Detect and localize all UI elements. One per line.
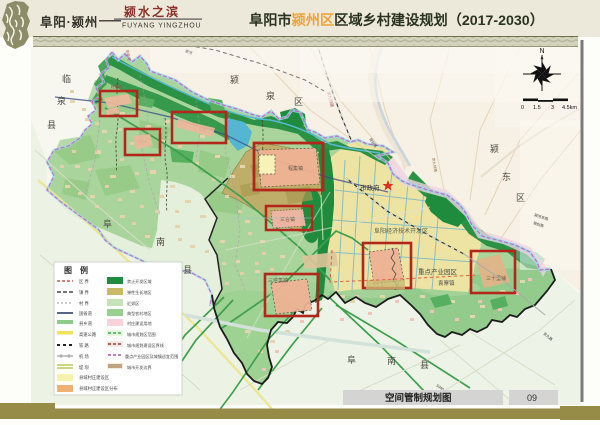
svg-text:颍水之滨: 颍水之滨 <box>124 4 180 19</box>
svg-text:重点产业园区: 重点产业园区 <box>418 267 458 276</box>
svg-text:0: 0 <box>521 105 524 111</box>
svg-text:三塔集镇: 三塔集镇 <box>268 277 288 284</box>
svg-text:城市开发边界: 城市开发边界 <box>127 364 152 370</box>
svg-text:3: 3 <box>551 105 554 111</box>
svg-text:N: N <box>540 48 545 55</box>
svg-text:城市规划建设区界线: 城市规划建设区界线 <box>127 342 164 348</box>
svg-text:1.5: 1.5 <box>533 105 541 111</box>
svg-text:颍: 颍 <box>230 74 239 85</box>
svg-text:4.5km: 4.5km <box>562 105 577 111</box>
svg-text:临: 临 <box>62 73 71 84</box>
svg-text:重点产业园区及城镇适宜范围: 重点产业园区及城镇适宜范围 <box>125 353 178 359</box>
svg-text:县域村庄建设区: 县域村庄建设区 <box>79 374 110 381</box>
svg-text:空间管制规划图: 空间管制规划图 <box>385 392 452 404</box>
svg-text:南: 南 <box>156 236 165 247</box>
svg-text:南: 南 <box>387 355 396 366</box>
svg-text:高速公路: 高速公路 <box>79 331 97 338</box>
svg-text:机 场: 机 场 <box>79 353 89 360</box>
svg-text:国省道: 国省道 <box>79 310 93 317</box>
svg-text:县: 县 <box>420 360 429 370</box>
svg-text:阜阳经济技术开发区: 阜阳经济技术开发区 <box>374 227 428 235</box>
svg-text:程集镇: 程集镇 <box>111 84 122 89</box>
svg-text:县: 县 <box>183 265 192 275</box>
svg-text:镇 界: 镇 界 <box>79 289 89 296</box>
svg-text:城市规划区范围: 城市规划区范围 <box>127 331 156 337</box>
svg-text:阜阳·颍州: 阜阳·颍州 <box>40 15 98 30</box>
svg-text:阜: 阜 <box>103 218 112 229</box>
svg-text:区: 区 <box>294 97 303 107</box>
svg-text:近郊区: 近郊区 <box>127 300 139 306</box>
svg-text:FUYANG YINGZHOU: FUYANG YINGZHOU <box>122 23 201 30</box>
svg-text:泉: 泉 <box>57 95 66 106</box>
svg-text:图 例: 图 例 <box>64 265 88 275</box>
svg-text:泉: 泉 <box>266 90 275 101</box>
svg-text:区: 区 <box>516 193 525 203</box>
svg-text:县乡道: 县乡道 <box>79 320 93 327</box>
svg-text:程集镇: 程集镇 <box>288 165 303 172</box>
svg-text:县: 县 <box>47 120 56 130</box>
svg-text:铁 路: 铁 路 <box>79 342 89 349</box>
svg-text:袁寨镇: 袁寨镇 <box>438 279 455 287</box>
svg-text:县域村庄建设区分布: 县域村庄建设区分布 <box>79 385 118 392</box>
svg-text:弹性生长地区: 弹性生长地区 <box>127 289 152 295</box>
svg-text:村 界: 村 界 <box>79 300 89 307</box>
svg-text:堤 坝: 堤 坝 <box>79 364 89 371</box>
svg-text:禁止开发区域: 禁止开发区域 <box>127 278 152 284</box>
svg-text:阜: 阜 <box>347 354 356 365</box>
svg-text:三合镇: 三合镇 <box>280 216 295 223</box>
svg-text:阜阳市颍州区区域乡村建设规划（2017-2030）: 阜阳市颍州区区域乡村建设规划（2017-2030） <box>249 12 544 29</box>
svg-text:东: 东 <box>502 171 511 182</box>
svg-text:市政府: 市政府 <box>360 183 380 192</box>
svg-text:典型农村地区: 典型农村地区 <box>127 310 152 316</box>
svg-text:村庄建设用地: 村庄建设用地 <box>127 320 152 326</box>
svg-text:09: 09 <box>527 393 537 403</box>
svg-text:颍: 颍 <box>490 143 499 154</box>
